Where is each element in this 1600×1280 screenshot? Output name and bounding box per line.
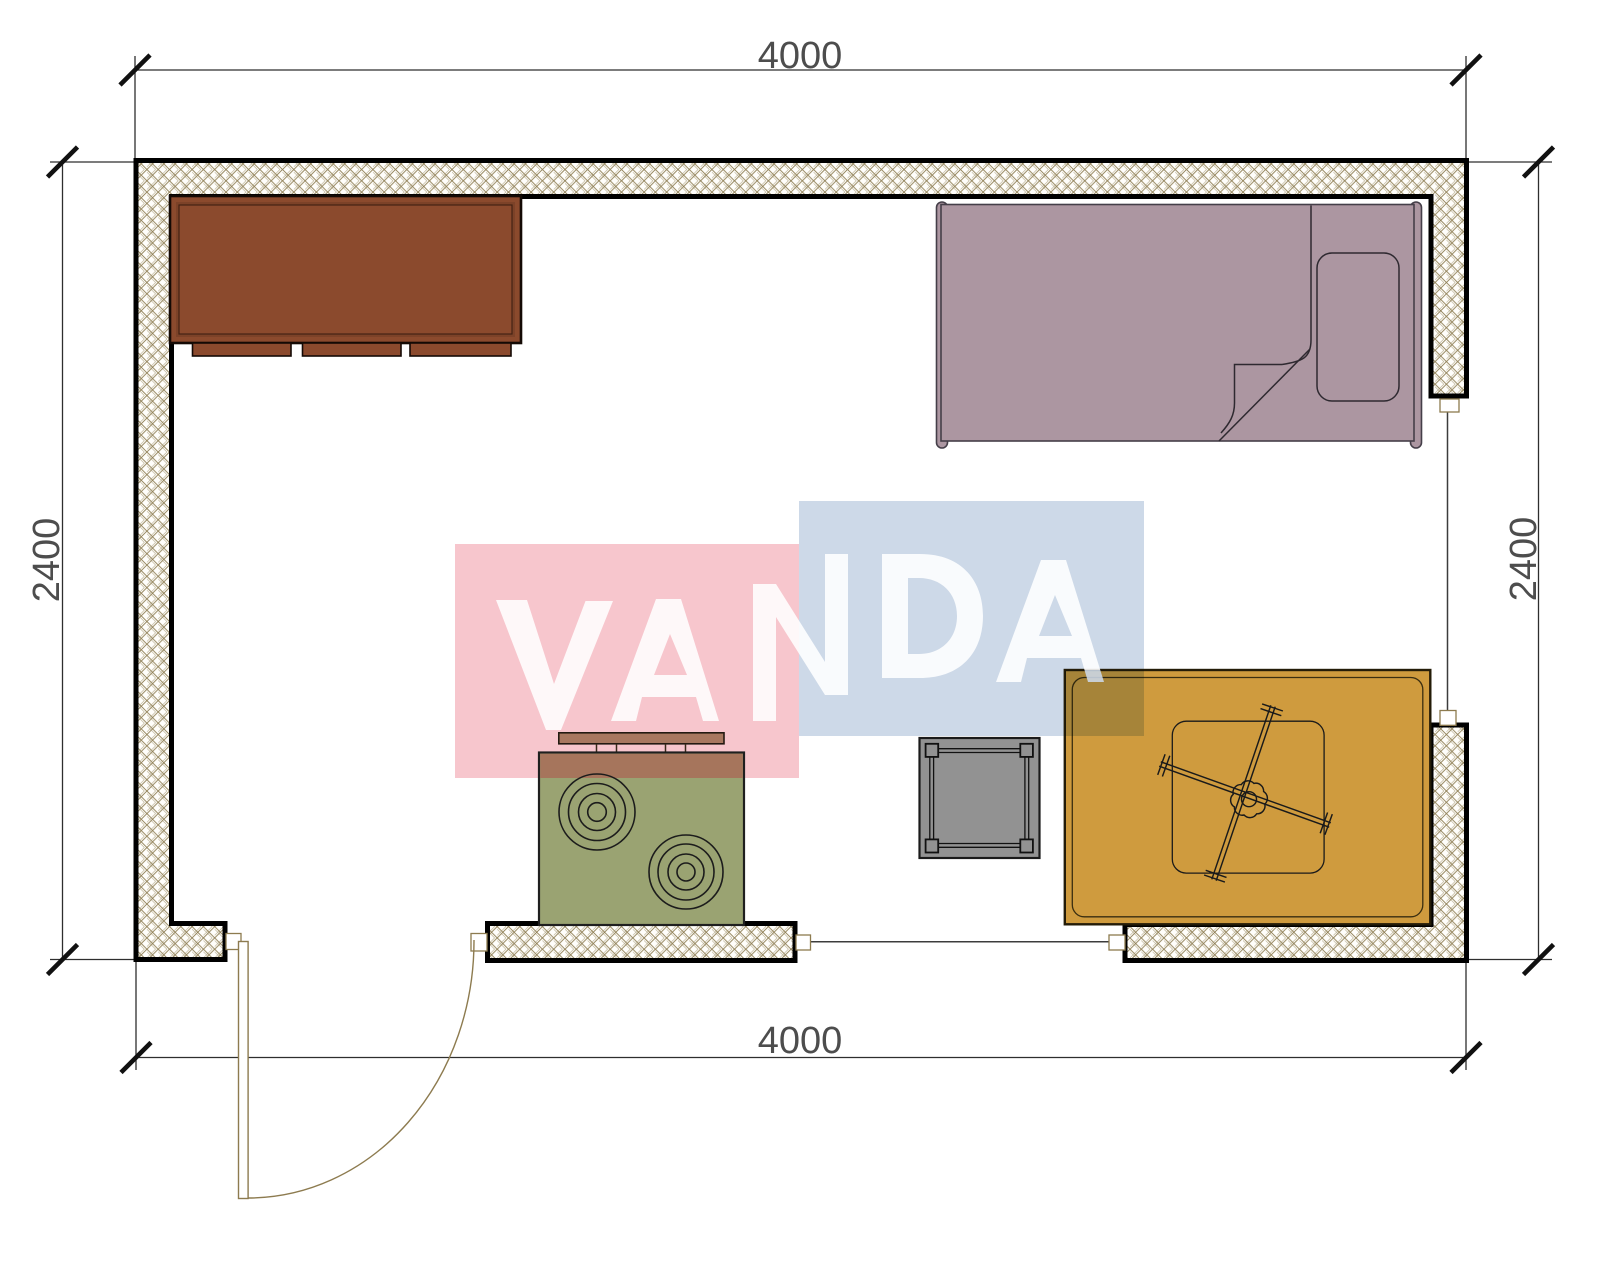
svg-text:4000: 4000 — [758, 1020, 843, 1062]
svg-text:2400: 2400 — [26, 518, 68, 603]
svg-text:4000: 4000 — [758, 35, 843, 77]
svg-text:2400: 2400 — [1503, 517, 1545, 602]
